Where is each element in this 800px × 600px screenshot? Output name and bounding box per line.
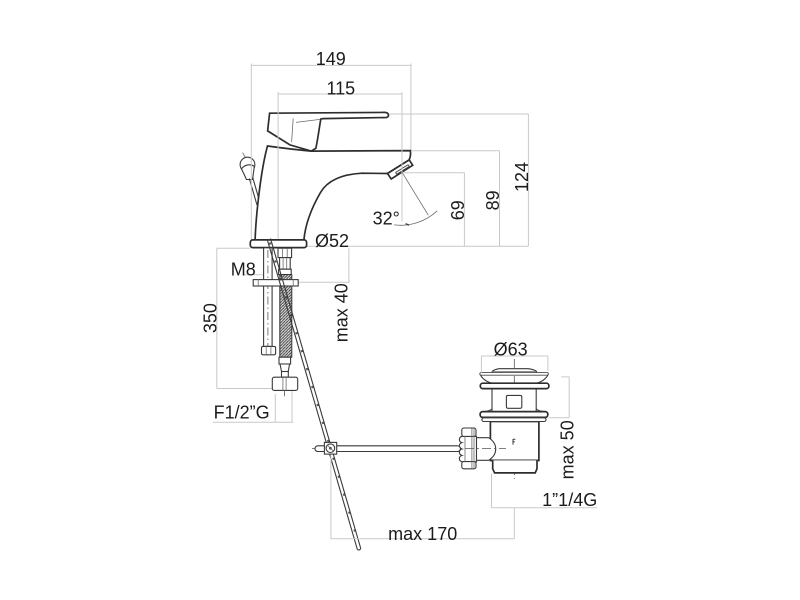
svg-text:max 170: max 170 bbox=[388, 524, 457, 544]
svg-text:Ø63: Ø63 bbox=[494, 339, 528, 359]
svg-text:max 50: max 50 bbox=[558, 420, 578, 479]
svg-text:69: 69 bbox=[448, 200, 468, 220]
svg-text:350: 350 bbox=[200, 303, 220, 333]
svg-text:124: 124 bbox=[512, 162, 532, 192]
svg-text:max 40: max 40 bbox=[332, 283, 352, 342]
svg-text:1”1/4G: 1”1/4G bbox=[542, 490, 597, 510]
svg-text:149: 149 bbox=[316, 49, 346, 69]
svg-text:32°: 32° bbox=[373, 208, 400, 228]
svg-text:89: 89 bbox=[483, 190, 503, 210]
svg-text:115: 115 bbox=[326, 79, 355, 99]
svg-text:F1/2”G: F1/2”G bbox=[214, 402, 270, 422]
svg-text:M8: M8 bbox=[231, 260, 256, 280]
svg-text:Ø52: Ø52 bbox=[315, 231, 349, 251]
